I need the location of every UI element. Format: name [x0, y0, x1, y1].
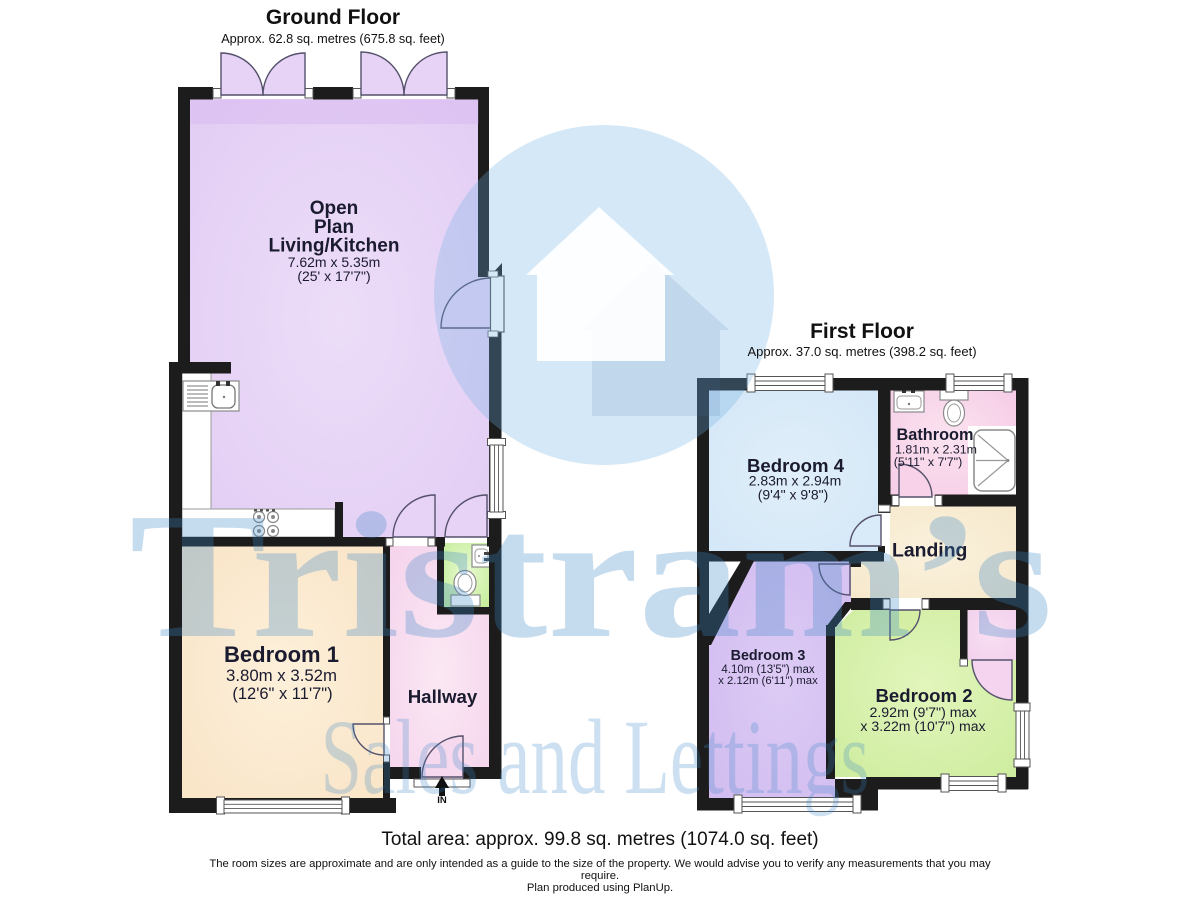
- svg-text:Sales and Lettings: Sales and Lettings: [320, 698, 869, 816]
- svg-text:Approx. 62.8 sq. metres (675.8: Approx. 62.8 sq. metres (675.8 sq. feet): [221, 32, 445, 46]
- svg-text:Tristram’s: Tristram’s: [129, 476, 1052, 676]
- svg-text:x 2.12m (6'11") max: x 2.12m (6'11") max: [718, 675, 818, 687]
- svg-text:(5'11" x 7'7"): (5'11" x 7'7"): [894, 455, 962, 469]
- svg-text:Bathroom: Bathroom: [897, 426, 974, 444]
- svg-text:x 3.22m (10'7") max: x 3.22m (10'7") max: [860, 718, 985, 734]
- svg-text:Bedroom 2: Bedroom 2: [875, 685, 972, 706]
- svg-text:The room sizes are approximate: The room sizes are approximate and are o…: [209, 858, 991, 870]
- svg-text:Plan produced using PlanUp.: Plan produced using PlanUp.: [527, 882, 673, 894]
- svg-text:(25' x 17'7"): (25' x 17'7"): [297, 268, 370, 284]
- svg-text:Ground Floor: Ground Floor: [266, 6, 400, 29]
- svg-text:require.: require.: [581, 870, 619, 882]
- svg-text:Open: Open: [310, 198, 359, 219]
- svg-text:(12'6" x 11'7"): (12'6" x 11'7"): [232, 685, 332, 703]
- svg-text:Total area: approx. 99.8 sq. m: Total area: approx. 99.8 sq. metres (107…: [381, 829, 818, 850]
- svg-text:Approx. 37.0 sq. metres (398.2: Approx. 37.0 sq. metres (398.2 sq. feet): [747, 344, 976, 359]
- svg-text:First Floor: First Floor: [810, 320, 914, 343]
